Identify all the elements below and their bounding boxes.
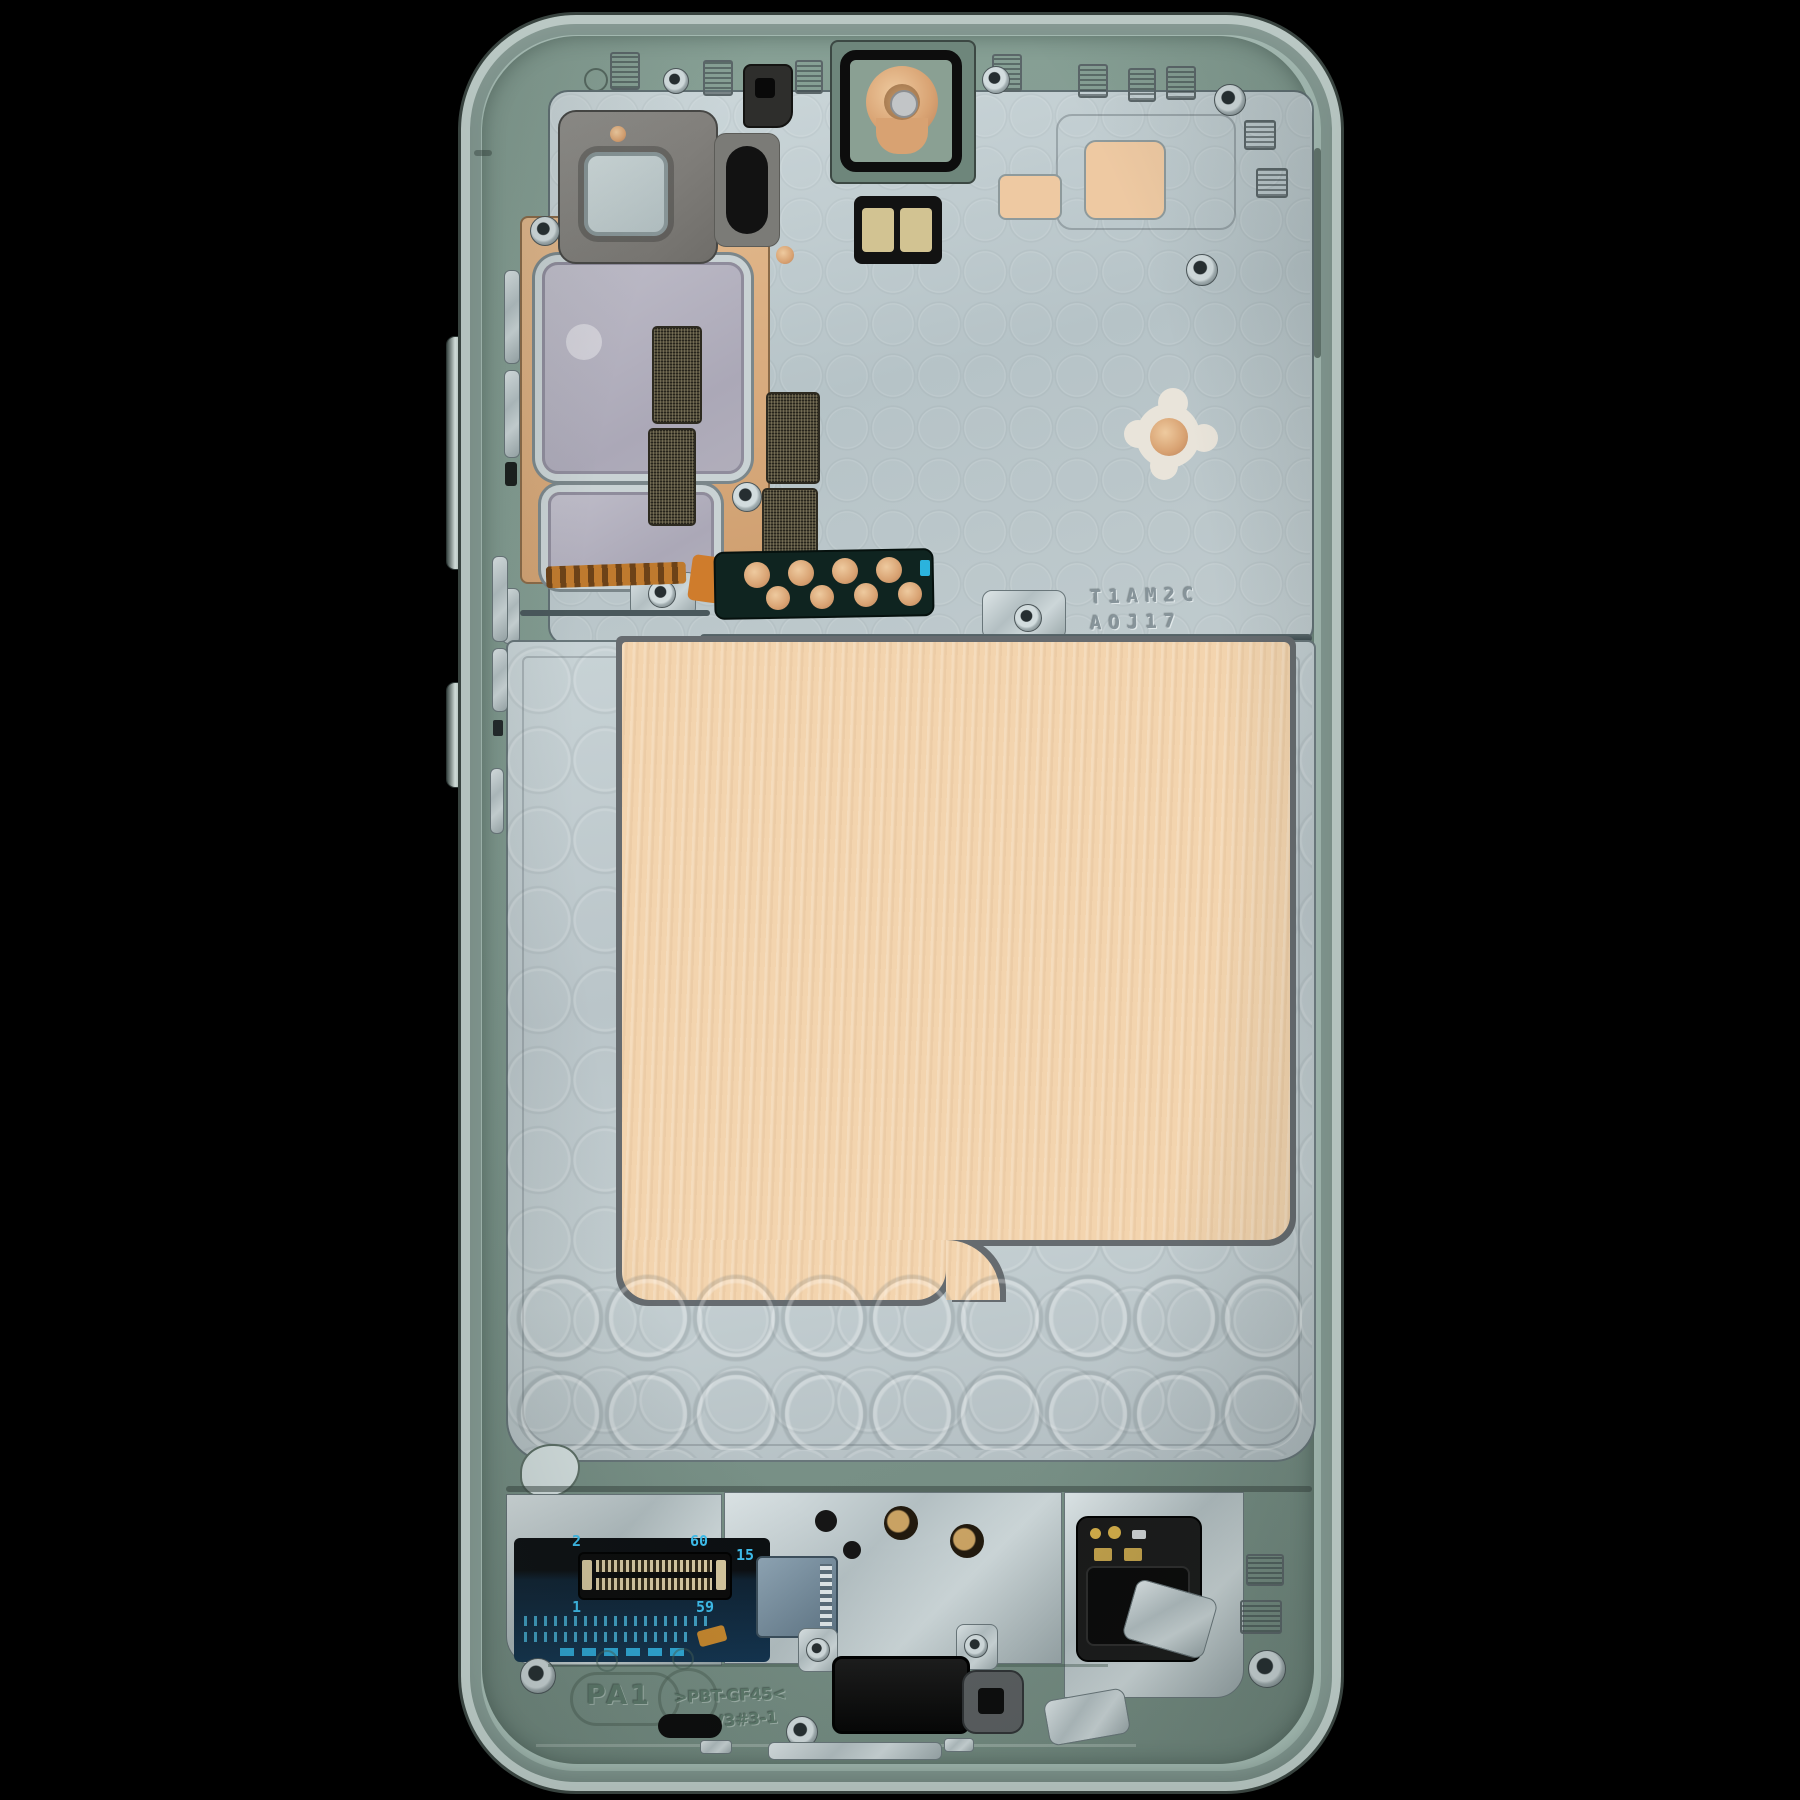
screw xyxy=(1014,604,1042,632)
smd-contact-clip xyxy=(1240,1600,1282,1634)
smd-contact-clip xyxy=(1256,168,1288,198)
smd-contact-clip xyxy=(1078,64,1108,98)
pcb-silkscreen-row xyxy=(524,1632,694,1642)
nfc-contact-window xyxy=(1084,140,1166,220)
screw xyxy=(530,216,560,246)
speaker-gold-dot xyxy=(1108,1526,1121,1539)
bottom-trim-bar xyxy=(768,1742,942,1760)
smd-contact-clip xyxy=(1246,1554,1284,1586)
side-key-contact-bar xyxy=(492,648,508,712)
clover-pad-petal xyxy=(1124,420,1152,448)
screw xyxy=(1214,84,1246,116)
screw xyxy=(1248,1650,1286,1688)
contact-pcb-pad xyxy=(766,586,790,610)
thermal-film-lower-lobe xyxy=(622,1240,946,1300)
connector-pin-label: 15 xyxy=(736,1546,754,1564)
contact-pcb-pad xyxy=(876,557,902,583)
antenna-line-left xyxy=(474,150,492,156)
smd-contact-clip xyxy=(610,52,640,90)
connector-pin-row xyxy=(596,1578,712,1590)
microphone-hole-ring xyxy=(584,68,608,92)
bracket-hole-gold xyxy=(950,1524,984,1558)
bottom-trim-tab xyxy=(944,1738,974,1752)
speaker-white-bit xyxy=(1132,1530,1146,1539)
clover-pad-copper-center xyxy=(1150,418,1188,456)
front-camera-copper-lobe xyxy=(876,118,928,154)
antenna-mesh-pad xyxy=(648,428,696,526)
antenna-mesh-pad xyxy=(652,326,702,424)
contact-pcb-pad xyxy=(832,558,858,584)
speaker-gold-dot xyxy=(1090,1528,1101,1539)
contact-pcb-pad xyxy=(788,560,814,586)
smd-contact-clip xyxy=(703,60,733,96)
smd-contact-clip xyxy=(1166,66,1196,100)
smd-contact-clip xyxy=(1128,68,1156,102)
screw xyxy=(732,482,762,512)
sensor-oval xyxy=(726,146,768,234)
screw xyxy=(1186,254,1218,286)
earpiece-grommet-hole xyxy=(755,78,775,98)
clover-pad-petal xyxy=(1190,424,1218,452)
side-key-contact-bar xyxy=(490,768,504,834)
smd-contact-clip xyxy=(795,60,823,94)
antenna-line-right xyxy=(1314,148,1321,358)
secondary-connector-comb xyxy=(820,1564,832,1626)
contact-pcb-pad xyxy=(810,585,834,609)
clover-pad-petal xyxy=(1158,388,1188,418)
camera-shield-window xyxy=(584,152,668,236)
copper-via-dot xyxy=(610,126,626,142)
flash-pad xyxy=(862,208,894,252)
speaker-contact xyxy=(1094,1548,1112,1561)
connector-end-pad xyxy=(582,1560,592,1590)
screw xyxy=(806,1638,830,1662)
bracket-hole xyxy=(815,1510,837,1532)
thermal-pad-spot xyxy=(566,324,602,360)
nfc-contact-window xyxy=(998,174,1062,220)
pcb-silkscreen-row xyxy=(524,1616,714,1626)
thermal-pad-upper xyxy=(542,262,744,474)
bracket-hole xyxy=(843,1541,861,1559)
front-camera-lens xyxy=(890,90,918,118)
antenna-mesh-pad xyxy=(766,392,820,484)
connector-pin-label: 2 xyxy=(572,1532,581,1550)
bracket-hole-gold xyxy=(884,1506,918,1540)
flex-black-segment xyxy=(493,720,503,736)
connector-pin-label: 60 xyxy=(690,1532,708,1550)
connector-end-pad xyxy=(716,1560,726,1590)
screw xyxy=(663,68,689,94)
connector-pin-row xyxy=(596,1560,712,1572)
molded-boss-circle xyxy=(596,1650,618,1672)
flex-black-segment xyxy=(505,462,517,486)
thermal-film-main xyxy=(622,642,1290,1240)
mold-part-label: PA1 xyxy=(586,1680,652,1711)
usb-window xyxy=(832,1656,970,1734)
contact-pcb-pad xyxy=(898,582,922,606)
product-photo-canvas: T1AM2C AOJ17 2 60 1 59 15 PA1 >PBT xyxy=(0,0,1800,1800)
contact-pcb-pad xyxy=(854,583,878,607)
speaker-contact xyxy=(1124,1548,1142,1561)
copper-via-dot xyxy=(776,246,794,264)
pcb-cyan-dashes xyxy=(560,1648,690,1656)
mic-grommet-hole xyxy=(978,1688,1004,1714)
clover-pad-petal xyxy=(1150,452,1178,480)
screw xyxy=(964,1634,988,1658)
side-key-contact-bar xyxy=(492,556,508,642)
mold-material-label: >PBT-GF45< xyxy=(674,1684,787,1707)
flash-pad xyxy=(900,208,932,252)
smd-contact-clip xyxy=(1244,120,1276,150)
bottom-trim-tab xyxy=(700,1740,732,1754)
connector-pin-label: 1 xyxy=(572,1598,581,1616)
contact-pcb-pad xyxy=(744,562,770,588)
side-key-contact-bar xyxy=(504,270,520,364)
molded-slot xyxy=(658,1714,722,1738)
side-key-contact-bar xyxy=(504,370,520,458)
screw xyxy=(982,66,1010,94)
contact-pcb-cyan-bit xyxy=(920,560,930,576)
plate-separation-shadow xyxy=(520,610,710,616)
connector-pin-label: 59 xyxy=(696,1598,714,1616)
